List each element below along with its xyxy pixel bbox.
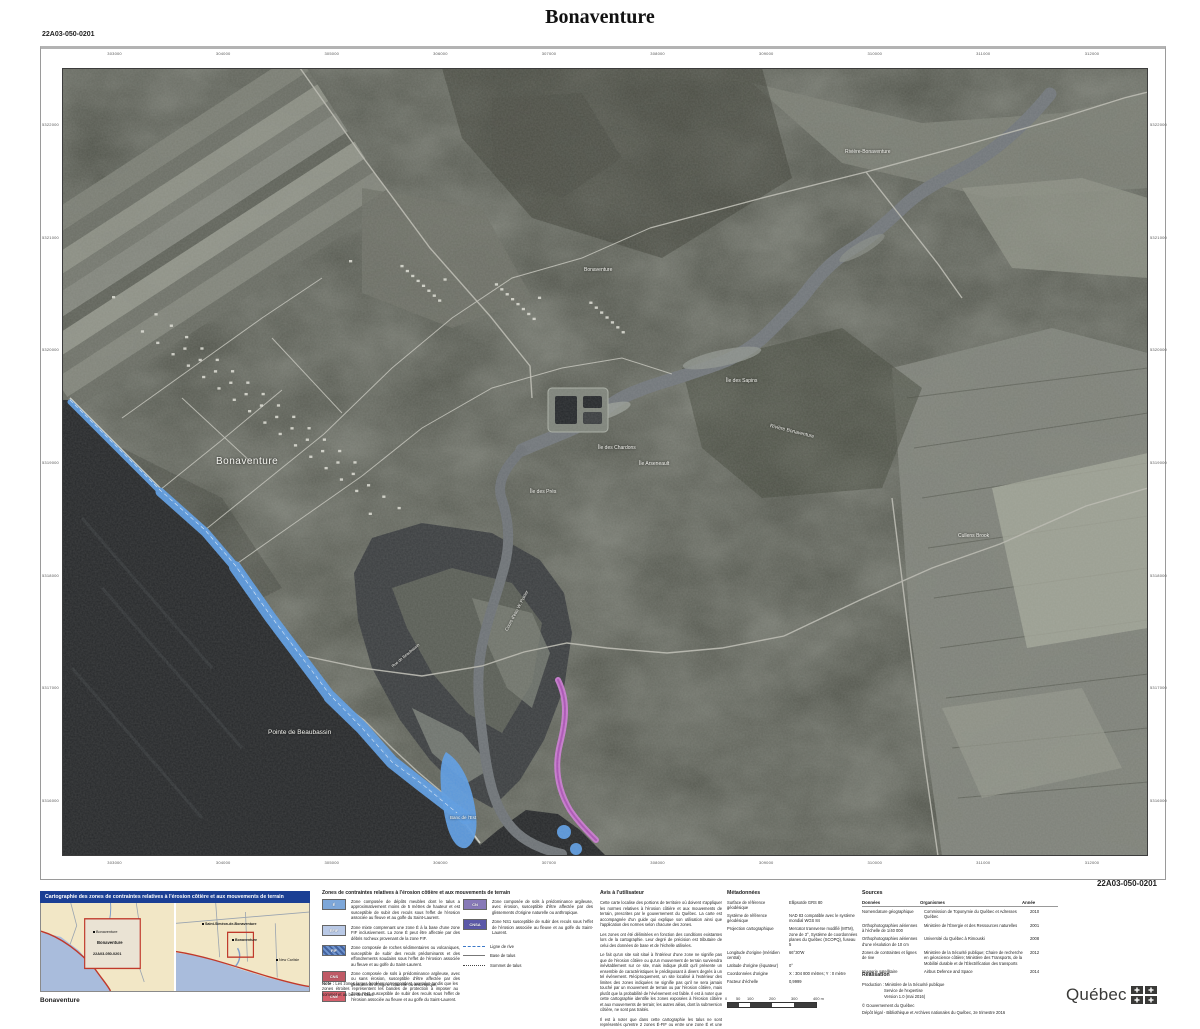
grid-tick-label: 307000 [542, 51, 557, 56]
scale-bar: 050100200300400 m [727, 996, 827, 1008]
source-organism: Ministère de la Sécurité publique; Chair… [924, 950, 1030, 966]
inset-caption: Bonaventure [40, 997, 310, 1004]
page-title: Bonaventure [0, 6, 1200, 29]
sheet-code-bottom: 22A03-050-0201 [1097, 879, 1157, 888]
metadata-label: Projection cartographique [727, 926, 789, 947]
scalebar-segment [728, 1003, 739, 1007]
metadata-label: Surface de référence géodésique [727, 900, 789, 911]
scalebar-segment [772, 1003, 794, 1007]
source-data: Nomenclature géographique [862, 909, 924, 920]
source-year: 2001 [1030, 923, 1039, 934]
rive-line-symbol [463, 946, 485, 947]
legend-column-2: CNZone composée de sols à prédominance a… [463, 899, 593, 972]
legend-item: CNZone composée de sols à prédominance a… [463, 899, 593, 915]
legend-line-label: Ligne de rive [490, 944, 514, 949]
source-organism: Université du Québec à Rimouski [924, 936, 1030, 947]
inset-place-text: Bonaventure [235, 938, 257, 942]
grid-tick-label: 5322000 [1150, 122, 1167, 127]
user-notice: Avis à l'utilisateur Cette carte localis… [600, 890, 722, 1029]
inset-place-text: Bonaventure [96, 930, 118, 934]
legend-line-item: Base de talus [463, 953, 593, 958]
grid-tick-label: 5317000 [1150, 685, 1167, 690]
sources-block: Sources DonnéesOrganismesAnnée Nomenclat… [862, 890, 1058, 977]
legend-line-item: Ligne de rive [463, 944, 593, 949]
grid-tick-label: 304000 [216, 51, 231, 56]
scalebar-tick-label: 100 [747, 996, 754, 1001]
grid-tick-label: 5318000 [1150, 573, 1167, 578]
metadata-label: Longitude d'origine (méridien central) [727, 950, 789, 961]
legend-title: Zones de contraintes relatives à l'érosi… [322, 890, 594, 896]
legend-item-text: Zone composée de dépôts meubles dont le … [351, 899, 460, 921]
metadata-value: NAD 83 compatible avec le système mondia… [789, 913, 858, 924]
metadata-row: Projection cartographiqueMercator transv… [727, 926, 858, 947]
legend-zone-code: FIF [323, 946, 345, 955]
legend-zone-code: CNSA [464, 920, 486, 929]
grid-tick-label: 303000 [107, 860, 122, 865]
legend-item: CNSAZone NS1 susceptible de subir des re… [463, 919, 593, 935]
user-notice-paragraph: Cette carte localise des portions de ter… [600, 900, 722, 928]
user-notice-paragraph: Les zones ont été délimitées en fonction… [600, 932, 722, 949]
realisation-line: Version 1.0 (mai 2016) [884, 994, 1058, 1000]
legend-item: FIFZone composée de roches sédimentaires… [322, 945, 460, 967]
legend-swatch: ÉFIF [322, 925, 346, 936]
sources-row: Zones de contraintes et lignes de riveMi… [862, 950, 1058, 966]
inset-right-art [176, 903, 309, 991]
metadata-label: Latitude d'origine (équateur) [727, 963, 789, 968]
inset-place-label: New Carlisle [276, 959, 299, 963]
scalebar-tick-label: 200 [769, 996, 776, 1001]
legend-item-text: Zone mixte comprenant une zone É à la ba… [351, 925, 460, 941]
sources-row: Orthophotographies aériennes d'une résol… [862, 936, 1058, 947]
metadata-value: 66°30'W [789, 950, 804, 961]
map-place-label: Île Arseneault [639, 461, 669, 467]
inset-title: Cartographie des zones de contraintes re… [40, 891, 310, 903]
sources-header: Année [1022, 900, 1058, 905]
realisation-line: Dépôt légal - Bibliothèque et Archives n… [862, 1010, 1058, 1016]
grid-tick-label: 5317000 [42, 685, 59, 690]
grid-tick-label: 5318000 [42, 573, 59, 578]
map-place-label: Pointe de Beaubassin [268, 729, 331, 736]
sommet-line-symbol [463, 965, 485, 966]
grid-tick-label: 5316000 [1150, 798, 1167, 803]
legend-swatch: CN [463, 899, 487, 910]
legend-item-text: Zone composée de sols à prédominance arg… [492, 899, 593, 915]
legend-zone-code: CN [464, 900, 486, 909]
place-dot [232, 939, 234, 941]
inset-place-text: 22A03-050-0201 [93, 952, 122, 956]
place-dot [202, 923, 204, 925]
legend-note: Note : Les zones larges bordées correspo… [322, 981, 458, 997]
scalebar-bar [727, 1002, 817, 1008]
quebec-flag-icon [1131, 986, 1157, 1004]
metadata-label: Système de référence géodésique [727, 913, 789, 924]
legend-line-label: Base de talus [490, 953, 515, 958]
inset-maps: BonaventureBonaventure22A03-050-0201 Sai… [40, 903, 310, 992]
realisation-title: Réalisation [862, 972, 1058, 978]
grid-tick-label: 5322000 [42, 122, 59, 127]
map-place-label: Île des Prés [530, 489, 556, 495]
metadata-value: 0,9999 [789, 979, 802, 984]
legend-item: ÉZone composée de dépôts meubles dont le… [322, 899, 460, 921]
inset-place-text: New Carlisle [279, 958, 299, 962]
grid-tick-label: 306000 [433, 860, 448, 865]
metadata-row: Coordonnées d'origineX : 304 800 mètres;… [727, 971, 858, 976]
grid-tick-label: 307000 [542, 860, 557, 865]
metadata-row: Système de référence géodésiqueNAD 83 co… [727, 913, 858, 924]
legend-line-label: Sommet de talus [490, 963, 521, 968]
legend-item-text: Zone composée de roches sédimentaires ou… [351, 945, 460, 967]
map-place-label: Île des Sapins [726, 378, 757, 384]
map-place-label: Bonaventure [584, 267, 612, 273]
legend-line-symbols: Ligne de riveBase de talusSommet de talu… [463, 944, 593, 968]
grid-tick-label: 303000 [107, 51, 122, 56]
sheet-code-top: 22A03-050-0201 [42, 31, 95, 38]
sources-title: Sources [862, 890, 1058, 896]
legend-note-text: Les zones larges bordées correspondent a… [322, 981, 458, 997]
grid-tick-label: 309000 [759, 51, 774, 56]
metadata-row: Latitude d'origine (équateur)0° [727, 963, 858, 968]
legend-item: ÉFIFZone mixte comprenant une zone É à l… [322, 925, 460, 941]
grid-tick-label: 310000 [868, 51, 883, 56]
grid-tick-label: 308000 [650, 860, 665, 865]
grid-tick-label: 5320000 [1150, 347, 1167, 352]
source-organism: Ministère de l'Énergie et des Ressources… [924, 923, 1030, 934]
sources-row: Orthophotographies aériennes à l'échelle… [862, 923, 1058, 934]
metadata-value: 0° [789, 963, 793, 968]
metadata-title: Métadonnées [727, 890, 858, 896]
legend-item-text: Zone NS1 susceptible de subir des reculs… [492, 919, 593, 935]
grid-tick-label: 309000 [759, 860, 774, 865]
legend-zone-code: CNS [323, 972, 345, 981]
map-place-label: Banc de l'Est [450, 815, 476, 820]
grid-tick-label: 308000 [650, 51, 665, 56]
inset-panel-right: Saint-Siméon-de-BonaventureBonaventureNe… [176, 903, 309, 991]
metadata-label: Coordonnées d'origine [727, 971, 789, 976]
inset-panel-left: BonaventureBonaventure22A03-050-0201 [41, 903, 174, 991]
grid-tick-label: 311000 [976, 860, 990, 865]
user-notice-paragraph: Le fait qu'un site soit situé à l'intéri… [600, 952, 722, 1013]
legend-note-label: Note : [322, 981, 334, 986]
grid-tick-label: 5319000 [42, 460, 59, 465]
base-line-symbol [463, 955, 485, 956]
metadata-row: Surface de référence géodésiqueEllipsoïd… [727, 900, 858, 911]
sources-row: Nomenclature géographiqueCommission de T… [862, 909, 1058, 920]
metadata-value: Ellipsoïde GRS 80 [789, 900, 822, 911]
scalebar-tick-label: 400 m [813, 996, 824, 1001]
inset-place-text: Bonaventure [97, 940, 123, 945]
scalebar-segment [794, 1003, 816, 1007]
grid-tick-label: 5319000 [1150, 460, 1167, 465]
grid-tick-label: 312000 [1085, 860, 1100, 865]
inset-place-label: Saint-Siméon-de-Bonaventure [202, 923, 257, 927]
metadata-value: Mercator transverse modifié (MTM), zone … [789, 926, 858, 947]
place-dot [93, 931, 95, 933]
grid-tick-label: 5321000 [42, 235, 59, 240]
map-place-label: Rivière-Bonaventure [845, 149, 891, 155]
aerial-map: Rivière-BonaventureBonaventureÎle des Sa… [62, 68, 1148, 856]
inset-place-label: Bonaventure [232, 939, 257, 943]
user-notice-paragraph: Il est à noter que dans cette cartograph… [600, 1017, 722, 1029]
map-place-label: Bonaventure [216, 456, 278, 467]
sources-header: Données [862, 900, 920, 905]
scalebar-tick-label: 300 [791, 996, 798, 1001]
metadata-label: Facteur d'échelle [727, 979, 789, 984]
place-dot [276, 959, 278, 961]
map-place-label: Cullens Brook [958, 533, 989, 539]
scalebar-tick-label: 0 [725, 996, 727, 1001]
legend-swatch: FIF [322, 945, 346, 956]
source-data: Zones de contraintes et lignes de rive [862, 950, 924, 966]
grid-tick-label: 312000 [1085, 51, 1100, 56]
legend-swatch: É [322, 899, 346, 910]
realisation-block: Réalisation Production : Ministère de la… [862, 972, 1058, 1016]
metadata-block: Métadonnées Surface de référence géodési… [727, 890, 858, 987]
source-year: 2012 [1030, 950, 1039, 966]
inset-place-label: 22A03-050-0201 [93, 953, 122, 957]
user-notice-title: Avis à l'utilisateur [600, 890, 722, 896]
source-year: 2010 [1030, 909, 1039, 920]
grid-tick-label: 311000 [976, 51, 990, 56]
metadata-row: Longitude d'origine (méridien central)66… [727, 950, 858, 961]
inset-place-label: Bonaventure [93, 931, 118, 935]
legend-line-item: Sommet de talus [463, 963, 593, 968]
grid-tick-label: 304000 [216, 860, 231, 865]
inset-place-text: Saint-Siméon-de-Bonaventure [205, 922, 257, 926]
source-data: Orthophotographies aériennes à l'échelle… [862, 923, 924, 934]
grid-tick-label: 306000 [433, 51, 448, 56]
grid-tick-label: 5320000 [42, 347, 59, 352]
scalebar-tick-label: 50 [736, 996, 740, 1001]
grid-tick-label: 5321000 [1150, 235, 1167, 240]
metadata-row: Facteur d'échelle0,9999 [727, 979, 858, 984]
sources-header: Organismes [920, 900, 1022, 905]
quebec-government-logo: Québec [1066, 985, 1157, 1005]
metadata-value: X : 304 800 mètres; Y : 0 mètre [789, 971, 846, 976]
source-organism: Commission de Toponymie du Québec et Adr… [924, 909, 1030, 920]
legend-zone-code: É [323, 900, 345, 909]
grid-tick-label: 310000 [868, 860, 883, 865]
grid-tick-label: 305000 [325, 51, 340, 56]
scalebar-segment [750, 1003, 772, 1007]
legend-zone-code: ÉFIF [323, 926, 345, 935]
locator-inset: Cartographie des zones de contraintes re… [40, 891, 310, 1004]
grid-tick-label: 5316000 [42, 798, 59, 803]
source-data: Orthophotographies aériennes d'une résol… [862, 936, 924, 947]
grid-tick-label: 305000 [325, 860, 340, 865]
inset-place-label: Bonaventure [97, 941, 123, 945]
scalebar-segment [739, 1003, 750, 1007]
legend-swatch: CNSA [463, 919, 487, 930]
map-place-label: Île des Chardons [598, 445, 636, 451]
inset-left-art [41, 903, 174, 991]
map-sheet-page: Bonaventure 22A03-050-0201 3030003040003… [0, 0, 1200, 1029]
source-year: 2008 [1030, 936, 1039, 947]
quebec-wordmark: Québec [1066, 985, 1127, 1005]
